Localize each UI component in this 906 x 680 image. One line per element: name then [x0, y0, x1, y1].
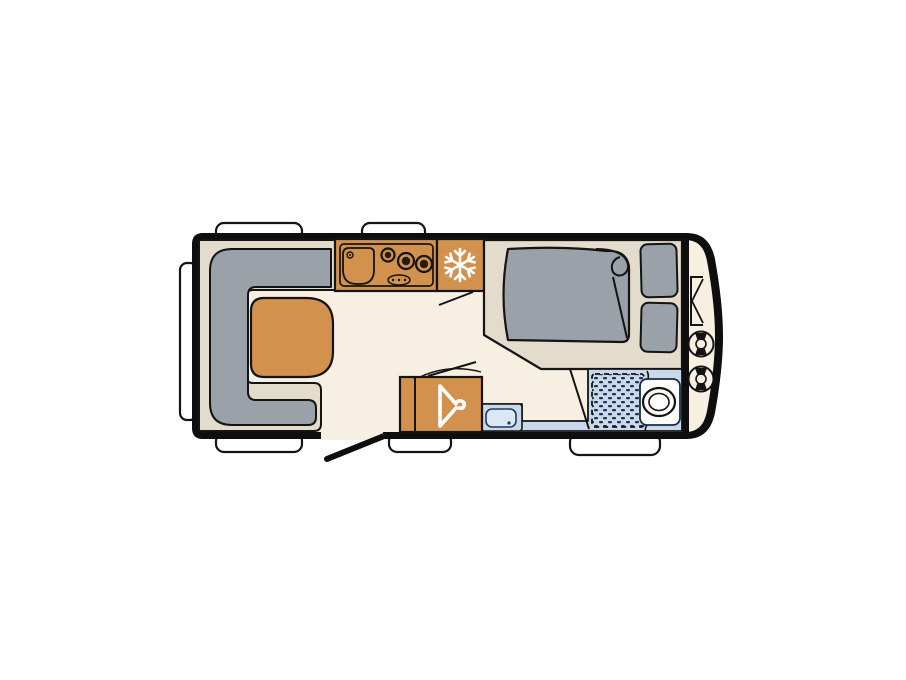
- burner-small-center: [385, 252, 391, 258]
- pillow: [640, 303, 677, 353]
- front-bulkhead-wall: [682, 240, 689, 432]
- burner-large-center: [420, 260, 428, 268]
- drainer-dot: [404, 279, 406, 281]
- washbasin-bowl: [486, 409, 516, 427]
- shower-tray: [592, 374, 644, 427]
- toilet-bowl: [643, 388, 675, 416]
- drainer-dot: [392, 279, 394, 281]
- drainer-dot: [398, 279, 400, 281]
- entry-door: [321, 430, 384, 459]
- gas-bottle: [689, 367, 714, 392]
- pillow: [640, 244, 677, 298]
- gas-bottle: [689, 332, 714, 357]
- burner-mid-center: [402, 257, 410, 265]
- kitchen: [335, 239, 437, 291]
- floor-plan-canvas: [0, 0, 906, 680]
- caravan-floor-plan: [0, 0, 906, 680]
- sink-faucet-dot: [349, 254, 351, 256]
- lounge-table: [251, 298, 333, 377]
- lounge: [199, 240, 335, 431]
- bed-duvet: [504, 248, 630, 342]
- washbasin-drain: [507, 421, 510, 424]
- bedroom: [484, 240, 682, 369]
